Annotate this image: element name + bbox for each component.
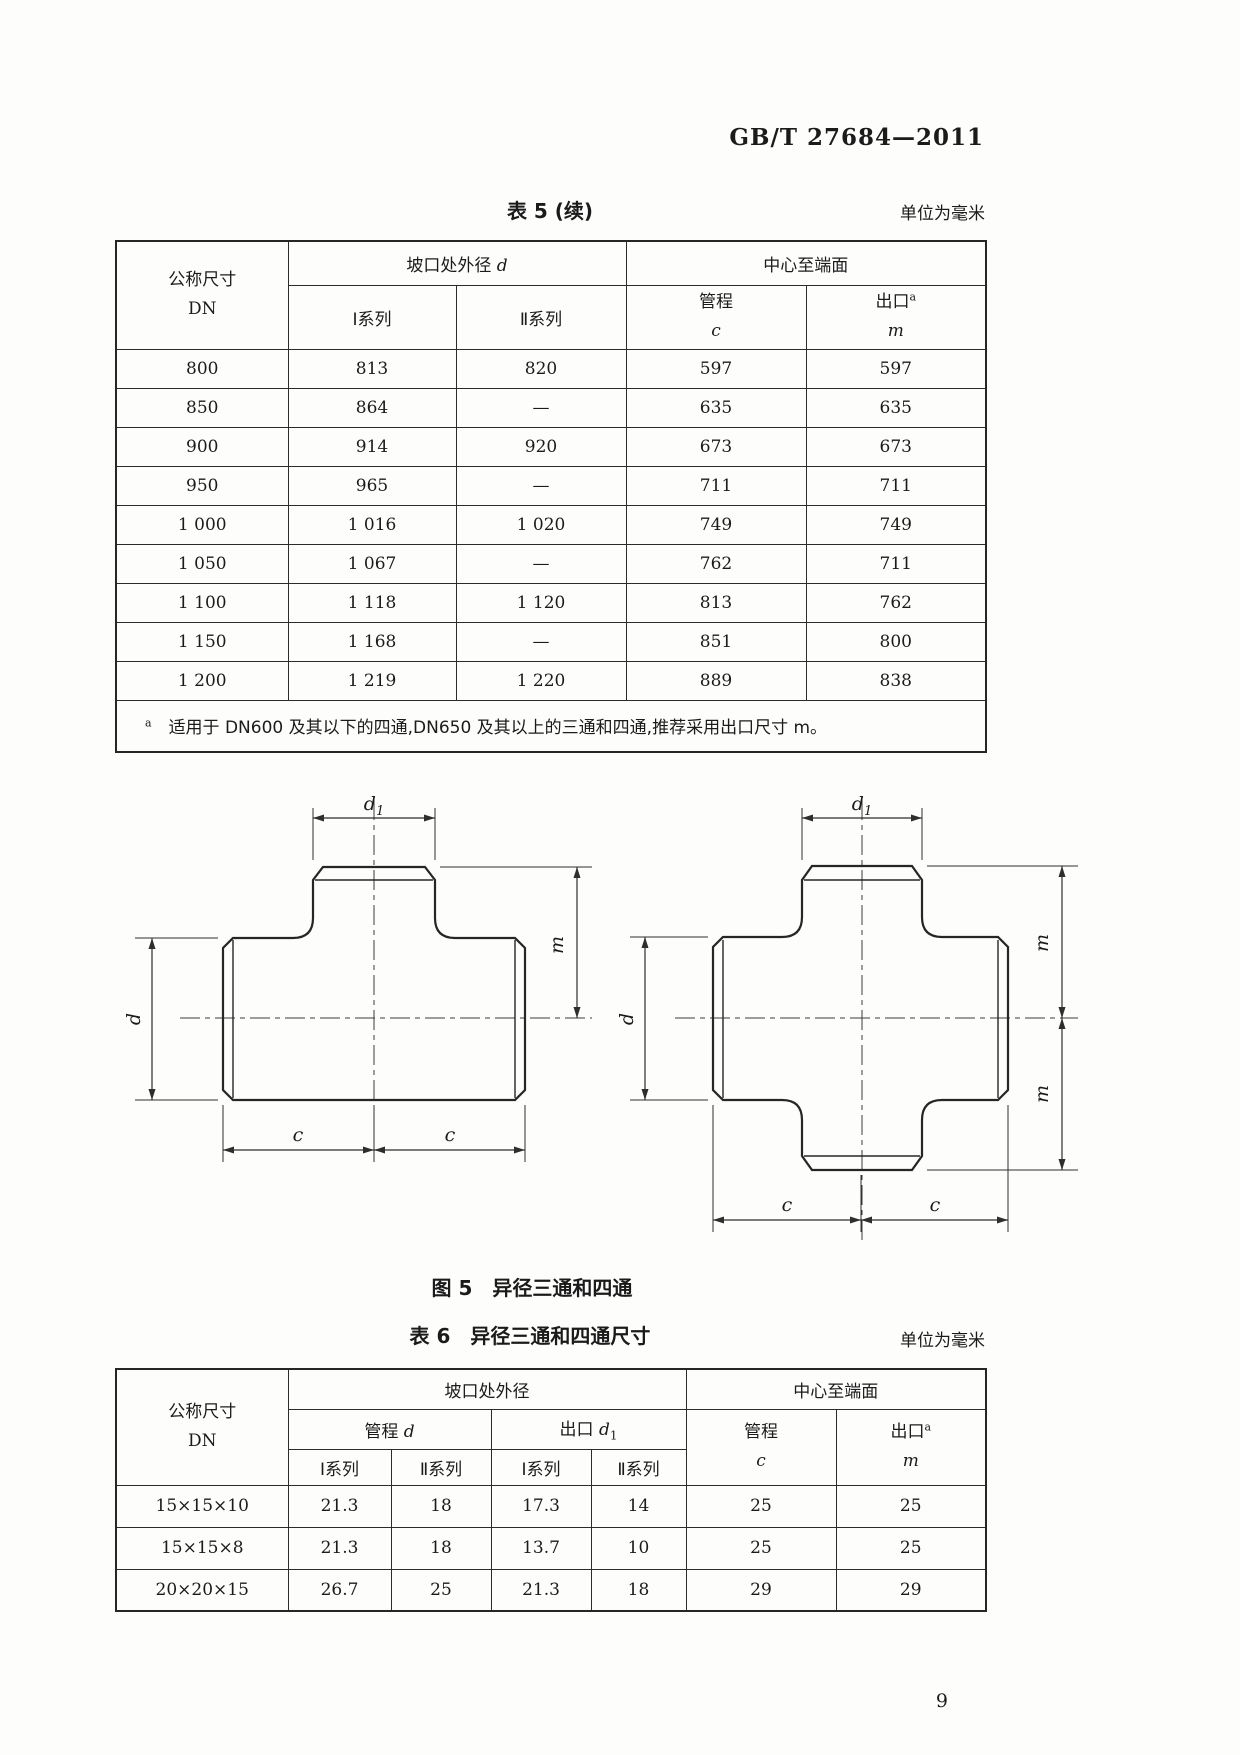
col-header-center-to-end: 中心至端面 — [626, 241, 986, 285]
col-header-dn: 公称尺寸 DN — [116, 241, 288, 349]
col-header-series1: Ⅰ系列 — [491, 1449, 591, 1485]
table-cell: 26.7 — [288, 1569, 391, 1611]
outlet-text-line: 出口a — [807, 288, 986, 317]
dim-label-m: m — [1031, 934, 1053, 952]
footnote-text: 适用于 DN600 及其以下的四通,DN650 及其以上的三通和四通,推荐采用出… — [169, 718, 828, 738]
outlet-text: 出口 — [875, 292, 909, 312]
outlet-footnote-marker: a — [909, 290, 916, 303]
outlet-d1-subscript: 1 — [610, 1429, 618, 1443]
table-cell: 1 220 — [456, 661, 626, 700]
table-cell: 14 — [591, 1485, 686, 1527]
dim-label-c: c — [782, 1194, 793, 1216]
col-header-dn: 公称尺寸 DN — [116, 1369, 288, 1485]
col-header-outlet: 出口a m — [836, 1409, 986, 1485]
table-cell: 711 — [806, 544, 986, 583]
groove-od-symbol: d — [497, 256, 508, 276]
extension-line — [630, 937, 708, 1100]
table5-header-row-1: 公称尺寸 DN 坡口处外径 d 中心至端面 — [116, 241, 986, 285]
table-cell: 21.3 — [491, 1569, 591, 1611]
run-text: 管程 — [627, 288, 806, 317]
table-cell: 597 — [626, 349, 806, 388]
col-header-series2: Ⅱ系列 — [456, 285, 626, 349]
table-cell: 813 — [626, 583, 806, 622]
table5-title: 表 5 (续) — [115, 195, 985, 224]
run-symbol: c — [627, 317, 806, 346]
col-header-series2: Ⅱ系列 — [391, 1449, 491, 1485]
outlet-text: 出口 — [890, 1422, 924, 1442]
unit-note: 单位为毫米 — [900, 199, 985, 224]
table-cell: 1 200 — [116, 661, 288, 700]
table-row: 1 200 1 219 1 220 889 838 — [116, 661, 986, 700]
table-cell: 29 — [686, 1569, 836, 1611]
table-cell: 1 067 — [288, 544, 456, 583]
table-cell: 673 — [626, 427, 806, 466]
table-cell: 18 — [391, 1485, 491, 1527]
table-cell: 711 — [806, 466, 986, 505]
run-d-symbol: d — [404, 1422, 415, 1442]
table-cell: 25 — [686, 1527, 836, 1569]
table-cell: 25 — [391, 1569, 491, 1611]
table-cell: 864 — [288, 388, 456, 427]
table-cell: 15×15×8 — [116, 1527, 288, 1569]
table-cell: 20×20×15 — [116, 1569, 288, 1611]
table-row: 1 000 1 016 1 020 749 749 — [116, 505, 986, 544]
table-cell: 25 — [836, 1527, 986, 1569]
table-cell: 920 — [456, 427, 626, 466]
table-cell: 914 — [288, 427, 456, 466]
table-cell: 1 118 — [288, 583, 456, 622]
table-cell: 18 — [591, 1569, 686, 1611]
groove-od-text: 坡口处外径 — [406, 256, 491, 276]
extension-line — [135, 938, 218, 1100]
outlet-footnote-marker: a — [924, 1420, 931, 1433]
col-header-outlet-d1: 出口 d1 — [491, 1409, 686, 1449]
table-cell: — — [456, 388, 626, 427]
outlet-d1-symbol: d — [599, 1420, 610, 1440]
col-header-run: 管程 c — [626, 285, 806, 349]
col-header-series1: Ⅰ系列 — [288, 285, 456, 349]
dim-label-c: c — [930, 1194, 941, 1216]
table-cell: 29 — [836, 1569, 986, 1611]
run-d-text: 管程 — [364, 1422, 398, 1442]
page-number: 9 — [936, 1690, 948, 1712]
table6-header-row-1: 公称尺寸 DN 坡口处外径 中心至端面 — [116, 1369, 986, 1409]
table-cell: 762 — [626, 544, 806, 583]
table-cell: 711 — [626, 466, 806, 505]
table-cell: 965 — [288, 466, 456, 505]
col-header-series1: Ⅰ系列 — [288, 1449, 391, 1485]
table-row: 15×15×8 21.3 18 13.7 10 25 25 — [116, 1527, 986, 1569]
table-cell: 10 — [591, 1527, 686, 1569]
run-text: 管程 — [687, 1418, 836, 1447]
outlet-symbol: m — [807, 317, 986, 346]
table6: 公称尺寸 DN 坡口处外径 中心至端面 管程 d 出口 d1 管程 c — [115, 1368, 987, 1612]
table-cell: 749 — [806, 505, 986, 544]
table-cell: — — [456, 622, 626, 661]
table-cell: 635 — [806, 388, 986, 427]
table-cell: 851 — [626, 622, 806, 661]
outlet-symbol: m — [837, 1447, 986, 1476]
table-row: 1 050 1 067 — 762 711 — [116, 544, 986, 583]
table-cell: 25 — [686, 1485, 836, 1527]
table-cell: 813 — [288, 349, 456, 388]
col-header-center-to-end: 中心至端面 — [686, 1369, 986, 1409]
doc-number: GB/T 27684—2011 — [729, 124, 984, 151]
col-header-run: 管程 c — [686, 1409, 836, 1485]
table-cell: 1 120 — [456, 583, 626, 622]
figure5-caption: 图 5 异径三通和四通 — [0, 1272, 1064, 1301]
col-header-dn-line1: 公称尺寸 — [117, 266, 288, 295]
table-cell: 15×15×10 — [116, 1485, 288, 1527]
table5-footnote: a 适用于 DN600 及其以下的四通,DN650 及其以上的三通和四通,推荐采… — [116, 700, 986, 752]
table-cell: 17.3 — [491, 1485, 591, 1527]
table-cell: 1 100 — [116, 583, 288, 622]
table-row: 15×15×10 21.3 18 17.3 14 25 25 — [116, 1485, 986, 1527]
footnote-marker: a — [145, 717, 152, 730]
col-header-run-d: 管程 d — [288, 1409, 491, 1449]
extension-line — [223, 1105, 525, 1162]
table-cell: — — [456, 466, 626, 505]
table-row: 950 965 — 711 711 — [116, 466, 986, 505]
table-row: 1 100 1 118 1 120 813 762 — [116, 583, 986, 622]
table-row: 20×20×15 26.7 25 21.3 18 29 29 — [116, 1569, 986, 1611]
dim-label-c: c — [293, 1124, 304, 1146]
table-cell: 800 — [806, 622, 986, 661]
dim-label-m: m — [546, 936, 568, 954]
table-cell: 889 — [626, 661, 806, 700]
table-cell: 635 — [626, 388, 806, 427]
standard-document-page: GB/T 27684—2011 表 5 (续) 单位为毫米 公称尺寸 DN 坡口… — [0, 0, 1240, 1755]
unit-note: 单位为毫米 — [900, 1326, 985, 1351]
table-row: 800 813 820 597 597 — [116, 349, 986, 388]
col-header-groove-od: 坡口处外径 — [288, 1369, 686, 1409]
table5-footnote-row: a 适用于 DN600 及其以下的四通,DN650 及其以上的三通和四通,推荐采… — [116, 700, 986, 752]
table-cell: 21.3 — [288, 1485, 391, 1527]
table-cell: 1 020 — [456, 505, 626, 544]
table-cell: 1 016 — [288, 505, 456, 544]
dim-label-d: d — [123, 1013, 145, 1025]
col-header-dn-line2: DN — [117, 295, 288, 324]
table-cell: 1 168 — [288, 622, 456, 661]
table-cell: 597 — [806, 349, 986, 388]
table-cell: 800 — [116, 349, 288, 388]
col-header-series2: Ⅱ系列 — [591, 1449, 686, 1485]
run-symbol: c — [687, 1447, 836, 1476]
table-cell: 749 — [626, 505, 806, 544]
table-cell: 820 — [456, 349, 626, 388]
extension-line — [713, 1105, 1008, 1232]
dim-label-m: m — [1031, 1085, 1053, 1103]
figure5-diagrams: d1 m d c c d1 — [0, 780, 1240, 1260]
col-header-outlet: 出口a m — [806, 285, 986, 349]
table-cell: 950 — [116, 466, 288, 505]
table-cell: 1 000 — [116, 505, 288, 544]
table5: 公称尺寸 DN 坡口处外径 d 中心至端面 Ⅰ系列 Ⅱ系列 管程 c 出口a — [115, 240, 987, 753]
table-cell: 1 219 — [288, 661, 456, 700]
table-cell: 900 — [116, 427, 288, 466]
table-cell: 13.7 — [491, 1527, 591, 1569]
table-cell: 18 — [391, 1527, 491, 1569]
table-cell: 1 050 — [116, 544, 288, 583]
col-header-groove-od: 坡口处外径 d — [288, 241, 626, 285]
table-cell: 850 — [116, 388, 288, 427]
table-cell: 838 — [806, 661, 986, 700]
dim-label-c: c — [445, 1124, 456, 1146]
table-cell: 25 — [836, 1485, 986, 1527]
table-cell: — — [456, 544, 626, 583]
table-cell: 1 150 — [116, 622, 288, 661]
table-row: 900 914 920 673 673 — [116, 427, 986, 466]
table-cell: 762 — [806, 583, 986, 622]
col-header-dn-line1: 公称尺寸 — [117, 1398, 288, 1427]
table-cell: 21.3 — [288, 1527, 391, 1569]
table-row: 1 150 1 168 — 851 800 — [116, 622, 986, 661]
col-header-dn-line2: DN — [117, 1427, 288, 1456]
table-row: 850 864 — 635 635 — [116, 388, 986, 427]
table-cell: 673 — [806, 427, 986, 466]
outlet-d1-text: 出口 — [560, 1420, 594, 1440]
dim-label-d: d — [616, 1013, 638, 1025]
outlet-text-line: 出口a — [837, 1418, 986, 1447]
